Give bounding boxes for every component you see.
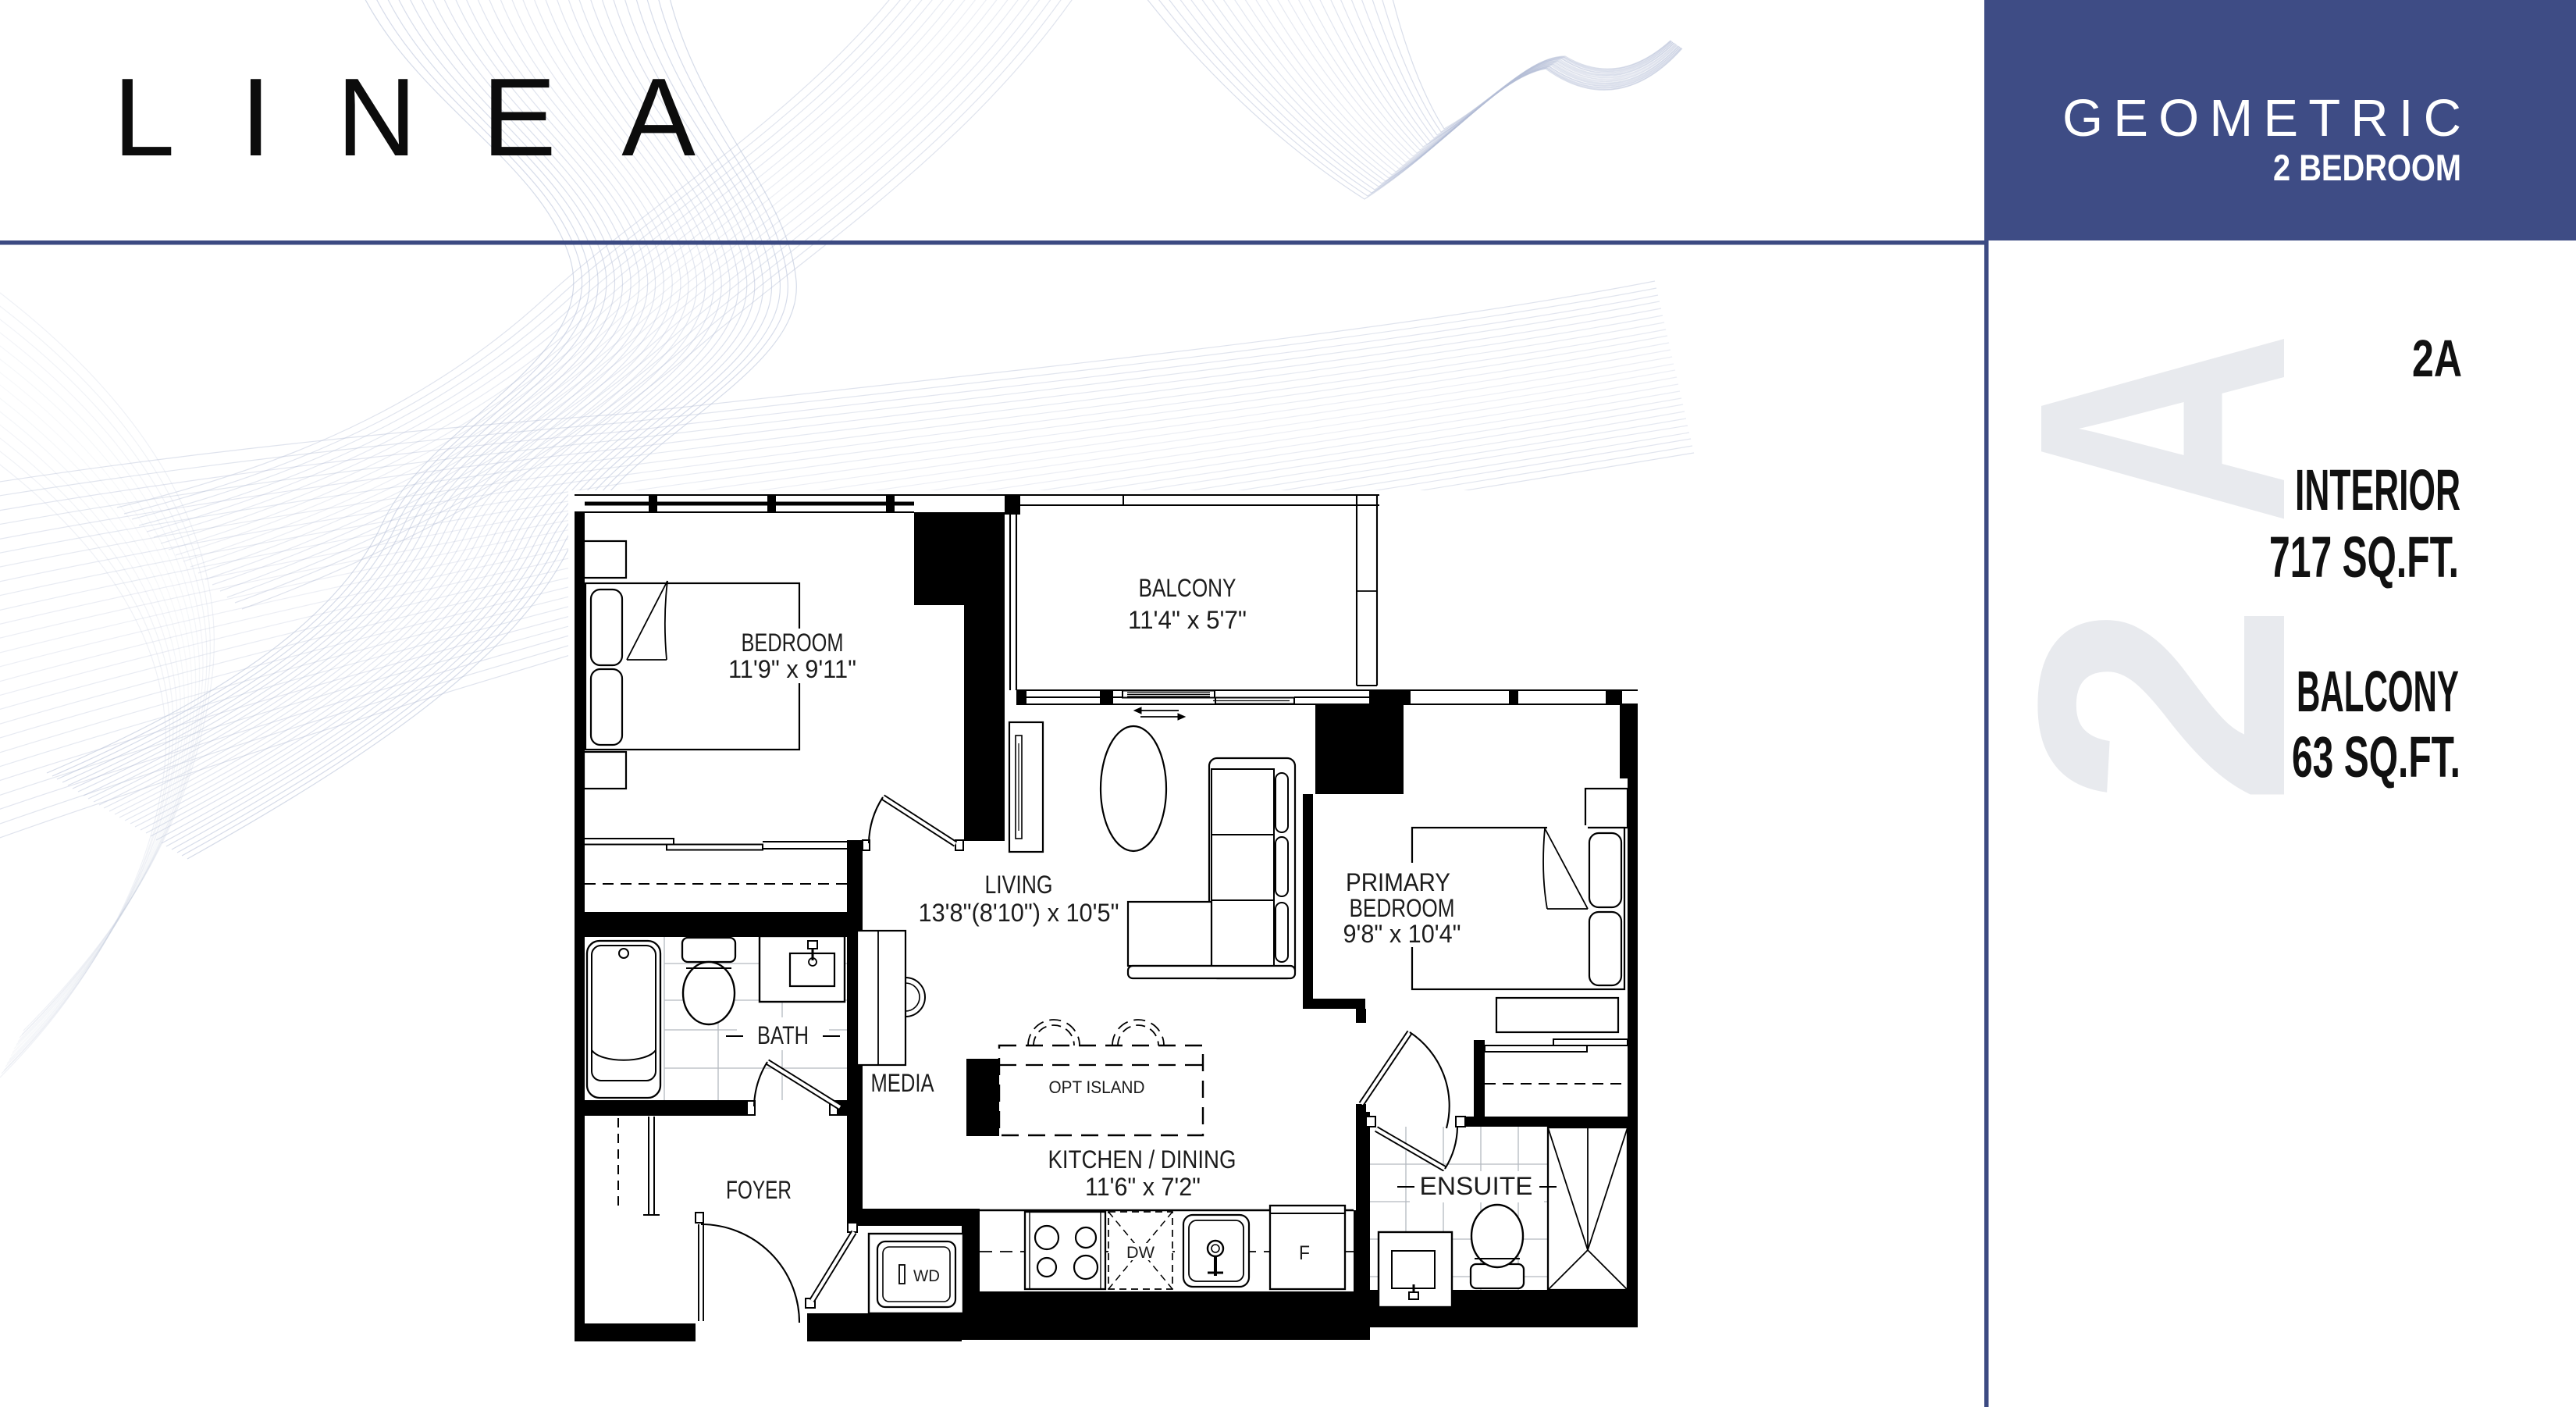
svg-text:BEDROOM: BEDROOM	[1350, 894, 1455, 922]
svg-text:ENSUITE: ENSUITE	[1420, 1172, 1533, 1200]
svg-text:2 BEDROOM: 2 BEDROOM	[2273, 147, 2461, 188]
svg-text:WD: WD	[913, 1267, 940, 1285]
svg-text:717 SQ.FT.: 717 SQ.FT.	[2269, 525, 2459, 590]
svg-text:63 SQ.FT.: 63 SQ.FT.	[2292, 725, 2460, 789]
svg-text:PRIMARY: PRIMARY	[1346, 868, 1450, 896]
svg-text:LIVING: LIVING	[985, 871, 1053, 899]
svg-text:9'8" x 10'4": 9'8" x 10'4"	[1343, 920, 1461, 948]
svg-text:INTERIOR: INTERIOR	[2295, 458, 2460, 522]
svg-text:BALCONY: BALCONY	[1139, 574, 1236, 602]
svg-text:11'9" x 9'11": 11'9" x 9'11"	[728, 655, 856, 683]
svg-text:DW: DW	[1126, 1244, 1155, 1262]
svg-text:BALCONY: BALCONY	[2297, 659, 2459, 724]
svg-text:F: F	[1299, 1242, 1310, 1264]
svg-text:OPT ISLAND: OPT ISLAND	[1049, 1078, 1145, 1097]
svg-text:BATH: BATH	[757, 1021, 809, 1049]
svg-text:BEDROOM: BEDROOM	[742, 629, 844, 657]
svg-text:13'8"(8'10") x 10'5": 13'8"(8'10") x 10'5"	[919, 899, 1119, 927]
svg-text:KITCHEN / DINING: KITCHEN / DINING	[1048, 1145, 1236, 1174]
svg-text:11'4" x 5'7": 11'4" x 5'7"	[1128, 606, 1247, 634]
svg-text:2A: 2A	[2412, 329, 2462, 388]
svg-text:MEDIA: MEDIA	[871, 1069, 935, 1097]
svg-text:FOYER: FOYER	[726, 1176, 792, 1204]
svg-text:11'6" x 7'2": 11'6" x 7'2"	[1085, 1173, 1201, 1201]
